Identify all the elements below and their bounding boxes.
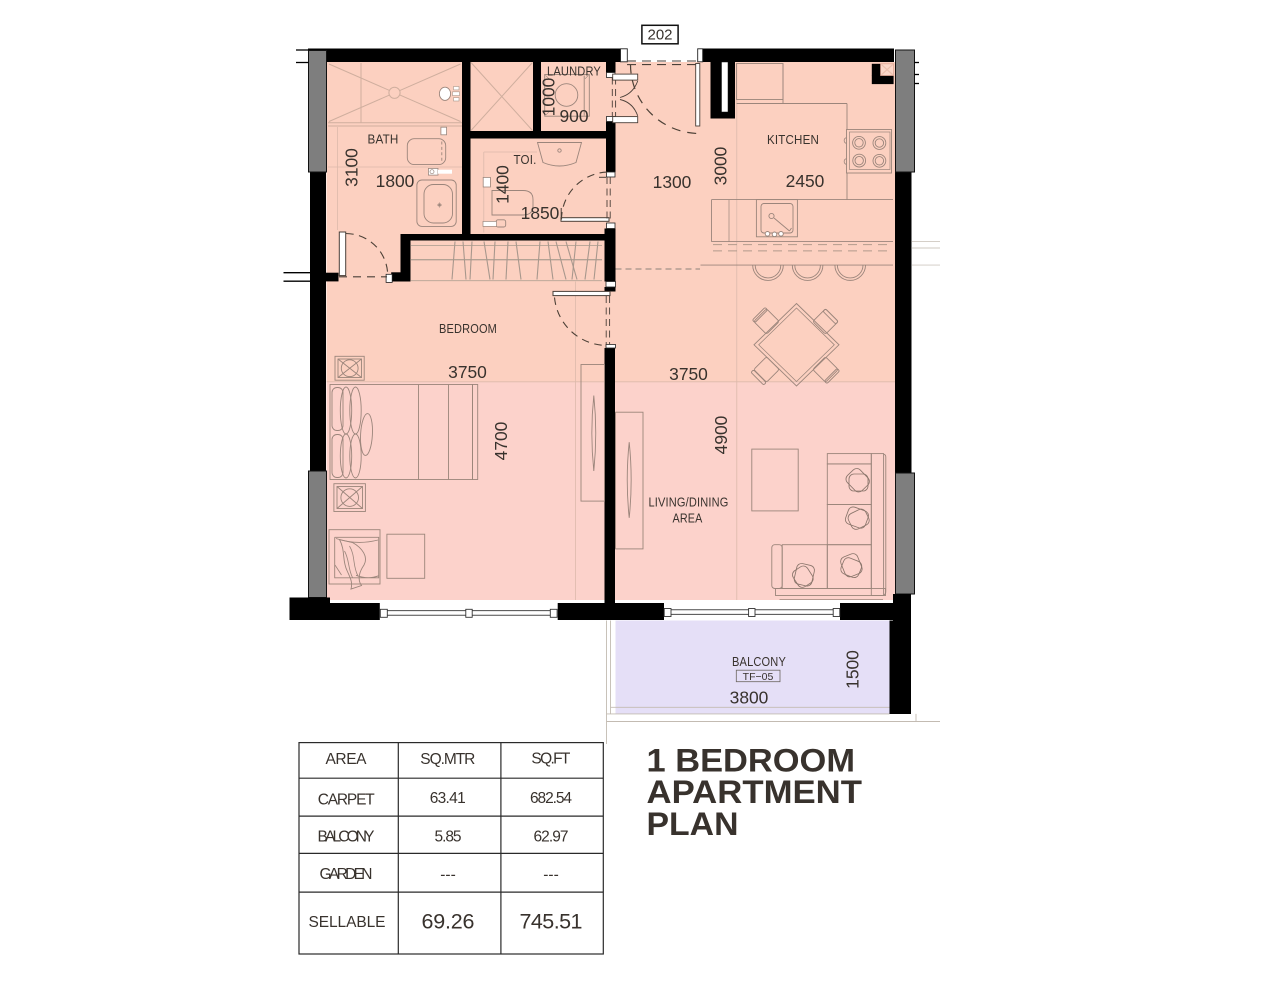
svg-text:202: 202 — [647, 26, 672, 43]
svg-text:69.26: 69.26 — [422, 910, 475, 934]
svg-text:SELLABLE: SELLABLE — [309, 914, 386, 931]
svg-text:---: --- — [440, 867, 456, 884]
svg-text:GARDEN: GARDEN — [320, 866, 373, 883]
svg-text:5.85: 5.85 — [435, 829, 462, 846]
svg-text:682.54: 682.54 — [530, 790, 572, 807]
svg-text:PLAN: PLAN — [647, 806, 739, 842]
svg-text:APARTMENT: APARTMENT — [647, 774, 863, 810]
svg-text:900: 900 — [559, 106, 588, 126]
svg-text:TOI.: TOI. — [514, 153, 537, 167]
svg-text:4700: 4700 — [491, 422, 511, 461]
svg-text:1300: 1300 — [653, 172, 692, 192]
svg-text:SQ.FT: SQ.FT — [531, 750, 571, 767]
svg-text:BEDROOM: BEDROOM — [439, 322, 497, 336]
svg-text:3100: 3100 — [342, 148, 362, 187]
svg-text:3750: 3750 — [448, 362, 487, 382]
svg-text:AREA: AREA — [326, 751, 368, 768]
svg-text:LIVING/DINING: LIVING/DINING — [649, 496, 729, 510]
svg-text:3000: 3000 — [711, 147, 731, 186]
svg-text:1000: 1000 — [539, 78, 559, 117]
svg-text:SQ.MTR: SQ.MTR — [420, 751, 475, 768]
svg-text:BALCONY: BALCONY — [318, 829, 375, 846]
svg-text:62.97: 62.97 — [534, 829, 569, 846]
svg-text:LAUNDRY: LAUNDRY — [547, 65, 601, 79]
svg-text:1400: 1400 — [493, 165, 513, 204]
svg-text:---: --- — [543, 867, 559, 884]
svg-text:KITCHEN: KITCHEN — [767, 133, 819, 147]
svg-text:CARPET: CARPET — [318, 791, 376, 808]
svg-text:63.41: 63.41 — [430, 790, 466, 807]
svg-text:4900: 4900 — [711, 416, 731, 455]
svg-text:BATH: BATH — [368, 133, 399, 147]
svg-text:1 BEDROOM: 1 BEDROOM — [647, 743, 856, 779]
svg-text:BALCONY: BALCONY — [732, 655, 786, 669]
svg-text:2450: 2450 — [786, 171, 825, 191]
svg-text:3800: 3800 — [730, 688, 769, 708]
svg-text:1800: 1800 — [376, 171, 415, 191]
svg-text:1500: 1500 — [843, 650, 863, 689]
svg-text:745.51: 745.51 — [520, 910, 583, 934]
svg-text:3750: 3750 — [669, 364, 708, 384]
svg-text:TF−05: TF−05 — [743, 671, 774, 683]
svg-text:AREA: AREA — [673, 511, 703, 525]
svg-text:1850: 1850 — [521, 203, 560, 223]
